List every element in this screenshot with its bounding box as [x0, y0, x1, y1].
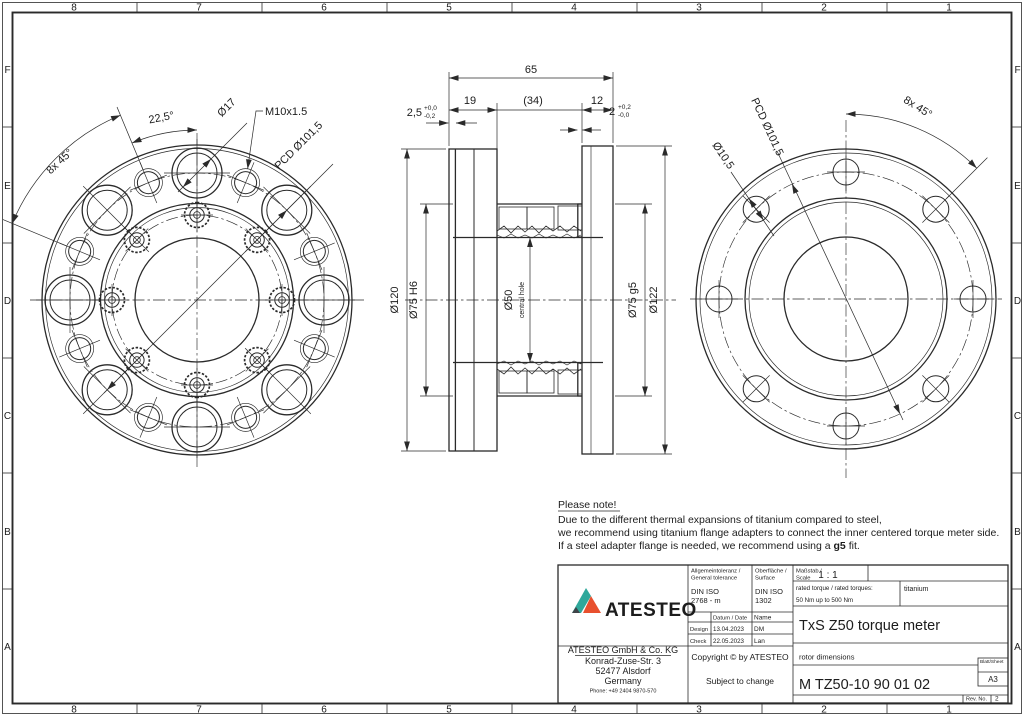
company-street: Konrad-Zuse-Str. 3: [585, 656, 661, 666]
dim-lip-left-tol-top: +0,0: [424, 105, 437, 112]
design-date: 13.04.2023: [713, 626, 745, 633]
design-name: DM: [754, 626, 764, 633]
general-tolerance-label: Allgemeintoleranz /: [691, 569, 741, 575]
surface-label: Surface: [755, 576, 775, 582]
note-title: Please note!: [558, 499, 616, 511]
general-tolerance-value: 2768 - m: [691, 596, 721, 605]
copyright-text: Copyright © by ATESTEO: [691, 652, 789, 662]
zone-col-label: 4: [571, 705, 577, 716]
general-tolerance-label: General tolerance: [691, 576, 737, 582]
zone-col-label: 7: [196, 705, 202, 716]
back-pcd-label: PCD Ø101,5: [748, 96, 785, 158]
rev-label: Rev. No.: [966, 697, 987, 703]
dim-d75h6: Ø75 H6: [408, 281, 420, 319]
company-name: ATESTEO GmbH & Co. KG: [568, 645, 678, 655]
back-view: PCD Ø101,5 Ø10,5 8x 45°: [690, 94, 1002, 478]
dim-d120: Ø120: [389, 287, 401, 314]
front-pcd-label: PCD Ø101,5: [273, 120, 326, 173]
zone-col-label: 6: [321, 705, 327, 716]
zone-col-label: 3: [696, 3, 702, 14]
title-block: ATESTEO Allgemeintoleranz / General tole…: [558, 565, 1008, 703]
back-hole-dia-label: Ø10,5: [710, 140, 737, 172]
front-hole-dia-label: Ø17: [215, 96, 238, 119]
zone-row-label: F: [4, 65, 10, 76]
dim-d50: Ø50: [503, 290, 515, 311]
rev-value: 2: [995, 696, 999, 703]
zone-col-label: 1: [946, 3, 952, 14]
zone-row-label: A: [4, 642, 11, 653]
zone-row-label: C: [4, 411, 11, 422]
dim-lip-right-tol-top: +0,2: [618, 104, 631, 111]
zone-col-label: 6: [321, 3, 327, 14]
note-line1: Due to the different thermal expansions …: [558, 514, 882, 526]
drawing-number: M TZ50-10 90 01 02: [799, 677, 930, 693]
general-tolerance-value: DIN ISO: [691, 587, 719, 596]
zone-col-label: 8: [71, 3, 77, 14]
zone-row-label: D: [1014, 296, 1021, 307]
dim-d50-sub: central hole: [519, 282, 526, 318]
surface-value: DIN ISO: [755, 587, 783, 596]
zone-frame: 8 7 6 5 4 3 2 1 8 7 6 5 4 3 2 1 F E D C …: [3, 3, 1022, 716]
rated-torque-label: rated torque / rated torques:: [796, 585, 873, 592]
date-header: Datum / Date: [713, 616, 747, 622]
dim-lip-left-tol-bot: -0,2: [424, 113, 436, 120]
zone-col-label: 7: [196, 3, 202, 14]
check-label: Check: [690, 639, 707, 645]
name-header: Name: [754, 615, 772, 622]
zone-row-label: D: [4, 296, 11, 307]
surface-value: 1302: [755, 596, 772, 605]
product-title: TxS Z50 torque meter: [799, 618, 940, 634]
design-label: Design: [690, 627, 708, 633]
dim-d122: Ø122: [648, 287, 660, 314]
dim-lip-left: 2,5: [407, 107, 422, 119]
dim-total-width: 65: [525, 64, 537, 76]
zone-row-label: B: [4, 527, 11, 538]
section-view: 65 19 (34) 12 2,5 +0,0 -0,2 2 +0,2 -0,0 …: [389, 64, 676, 454]
check-date: 22.05.2023: [713, 638, 745, 645]
dim-middle-width: (34): [523, 95, 543, 107]
zone-row-label: F: [1014, 65, 1020, 76]
zone-row-label: E: [1014, 181, 1021, 192]
sheet-label: Blatt/Sheet: [980, 659, 1004, 665]
surface-label: Oberfläche /: [755, 569, 787, 575]
zone-col-label: 1: [946, 705, 952, 716]
zone-col-label: 8: [71, 705, 77, 716]
atesteo-logo: ATESTEO: [572, 588, 697, 621]
note-line3: If a steel adapter flange is needed, we …: [558, 540, 860, 552]
zone-row-label: A: [1014, 642, 1021, 653]
back-pattern-label: 8x 45°: [901, 94, 934, 121]
note-line2: we recommend using titanium flange adapt…: [557, 527, 999, 539]
front-angle-label: 22,5°: [148, 110, 176, 127]
sheet-value: A3: [988, 675, 998, 684]
zone-row-label: E: [4, 181, 11, 192]
zone-col-label: 3: [696, 705, 702, 716]
front-thread-label: M10x1.5: [265, 106, 307, 118]
zone-row-label: C: [1014, 411, 1021, 422]
company-country: Germany: [604, 676, 642, 686]
dim-right-width: 12: [591, 95, 603, 107]
change-note: Subject to change: [706, 676, 774, 686]
dim-d75g5: Ø75 g5: [627, 282, 639, 318]
drawing-sheet: 8 7 6 5 4 3 2 1 8 7 6 5 4 3 2 1 F E D C …: [0, 0, 1024, 716]
subtitle: rotor dimensions: [799, 653, 855, 662]
zone-col-label: 4: [571, 3, 577, 14]
material-value: titanium: [904, 586, 929, 593]
zone-col-label: 5: [446, 705, 452, 716]
company-city: 52477 Alsdorf: [595, 666, 651, 676]
company-phone: Phone: +49 2404 9870-570: [590, 689, 657, 695]
drawing-canvas: 8 7 6 5 4 3 2 1 8 7 6 5 4 3 2 1 F E D C …: [0, 0, 1024, 716]
zone-row-label: B: [1014, 527, 1021, 538]
scale-value: 1 : 1: [818, 570, 838, 581]
zone-col-label: 2: [821, 705, 827, 716]
check-name: Lan: [754, 638, 765, 645]
front-pattern-label: 8x 45°: [44, 147, 75, 177]
dim-left-width: 19: [464, 95, 476, 107]
note-block: Please note! Due to the different therma…: [557, 499, 999, 552]
dim-lip-right: 2: [609, 106, 615, 118]
scale-label: Scale: [796, 576, 811, 582]
dim-lip-right-tol-bot: -0,0: [618, 112, 630, 119]
zone-col-label: 2: [821, 3, 827, 14]
zone-col-label: 5: [446, 3, 452, 14]
front-view: PCD Ø101,5 Ø17 M10x1.5 22,5° 8x 45°: [3, 96, 364, 467]
logo-text: ATESTEO: [605, 600, 697, 621]
rated-torque-value: 50 Nm up to 500 Nm: [796, 597, 853, 604]
